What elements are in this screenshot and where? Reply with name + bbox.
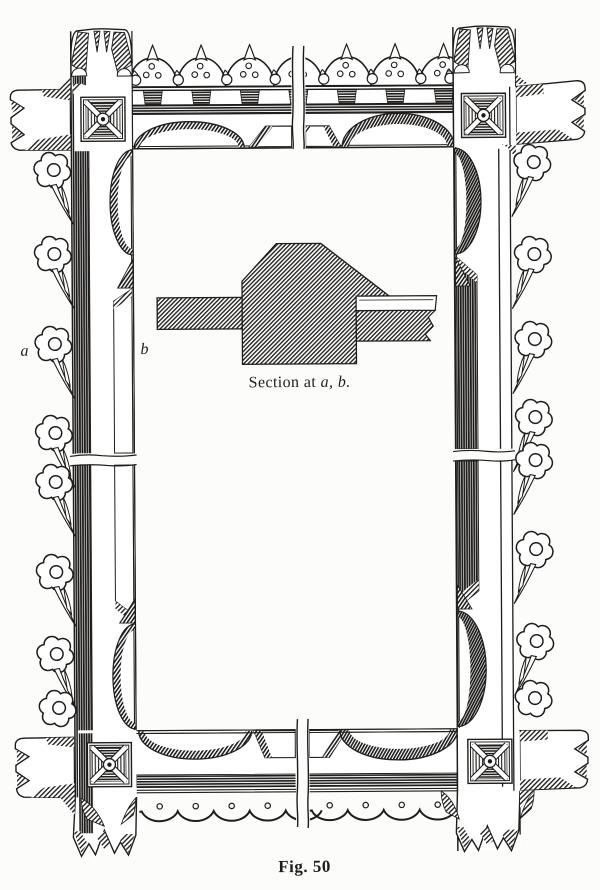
svg-text:Fig. 50: Fig. 50 (278, 857, 331, 876)
svg-text:a: a (20, 343, 28, 360)
svg-text:Section at a, b.: Section at a, b. (249, 374, 351, 392)
svg-text:b: b (140, 341, 148, 358)
